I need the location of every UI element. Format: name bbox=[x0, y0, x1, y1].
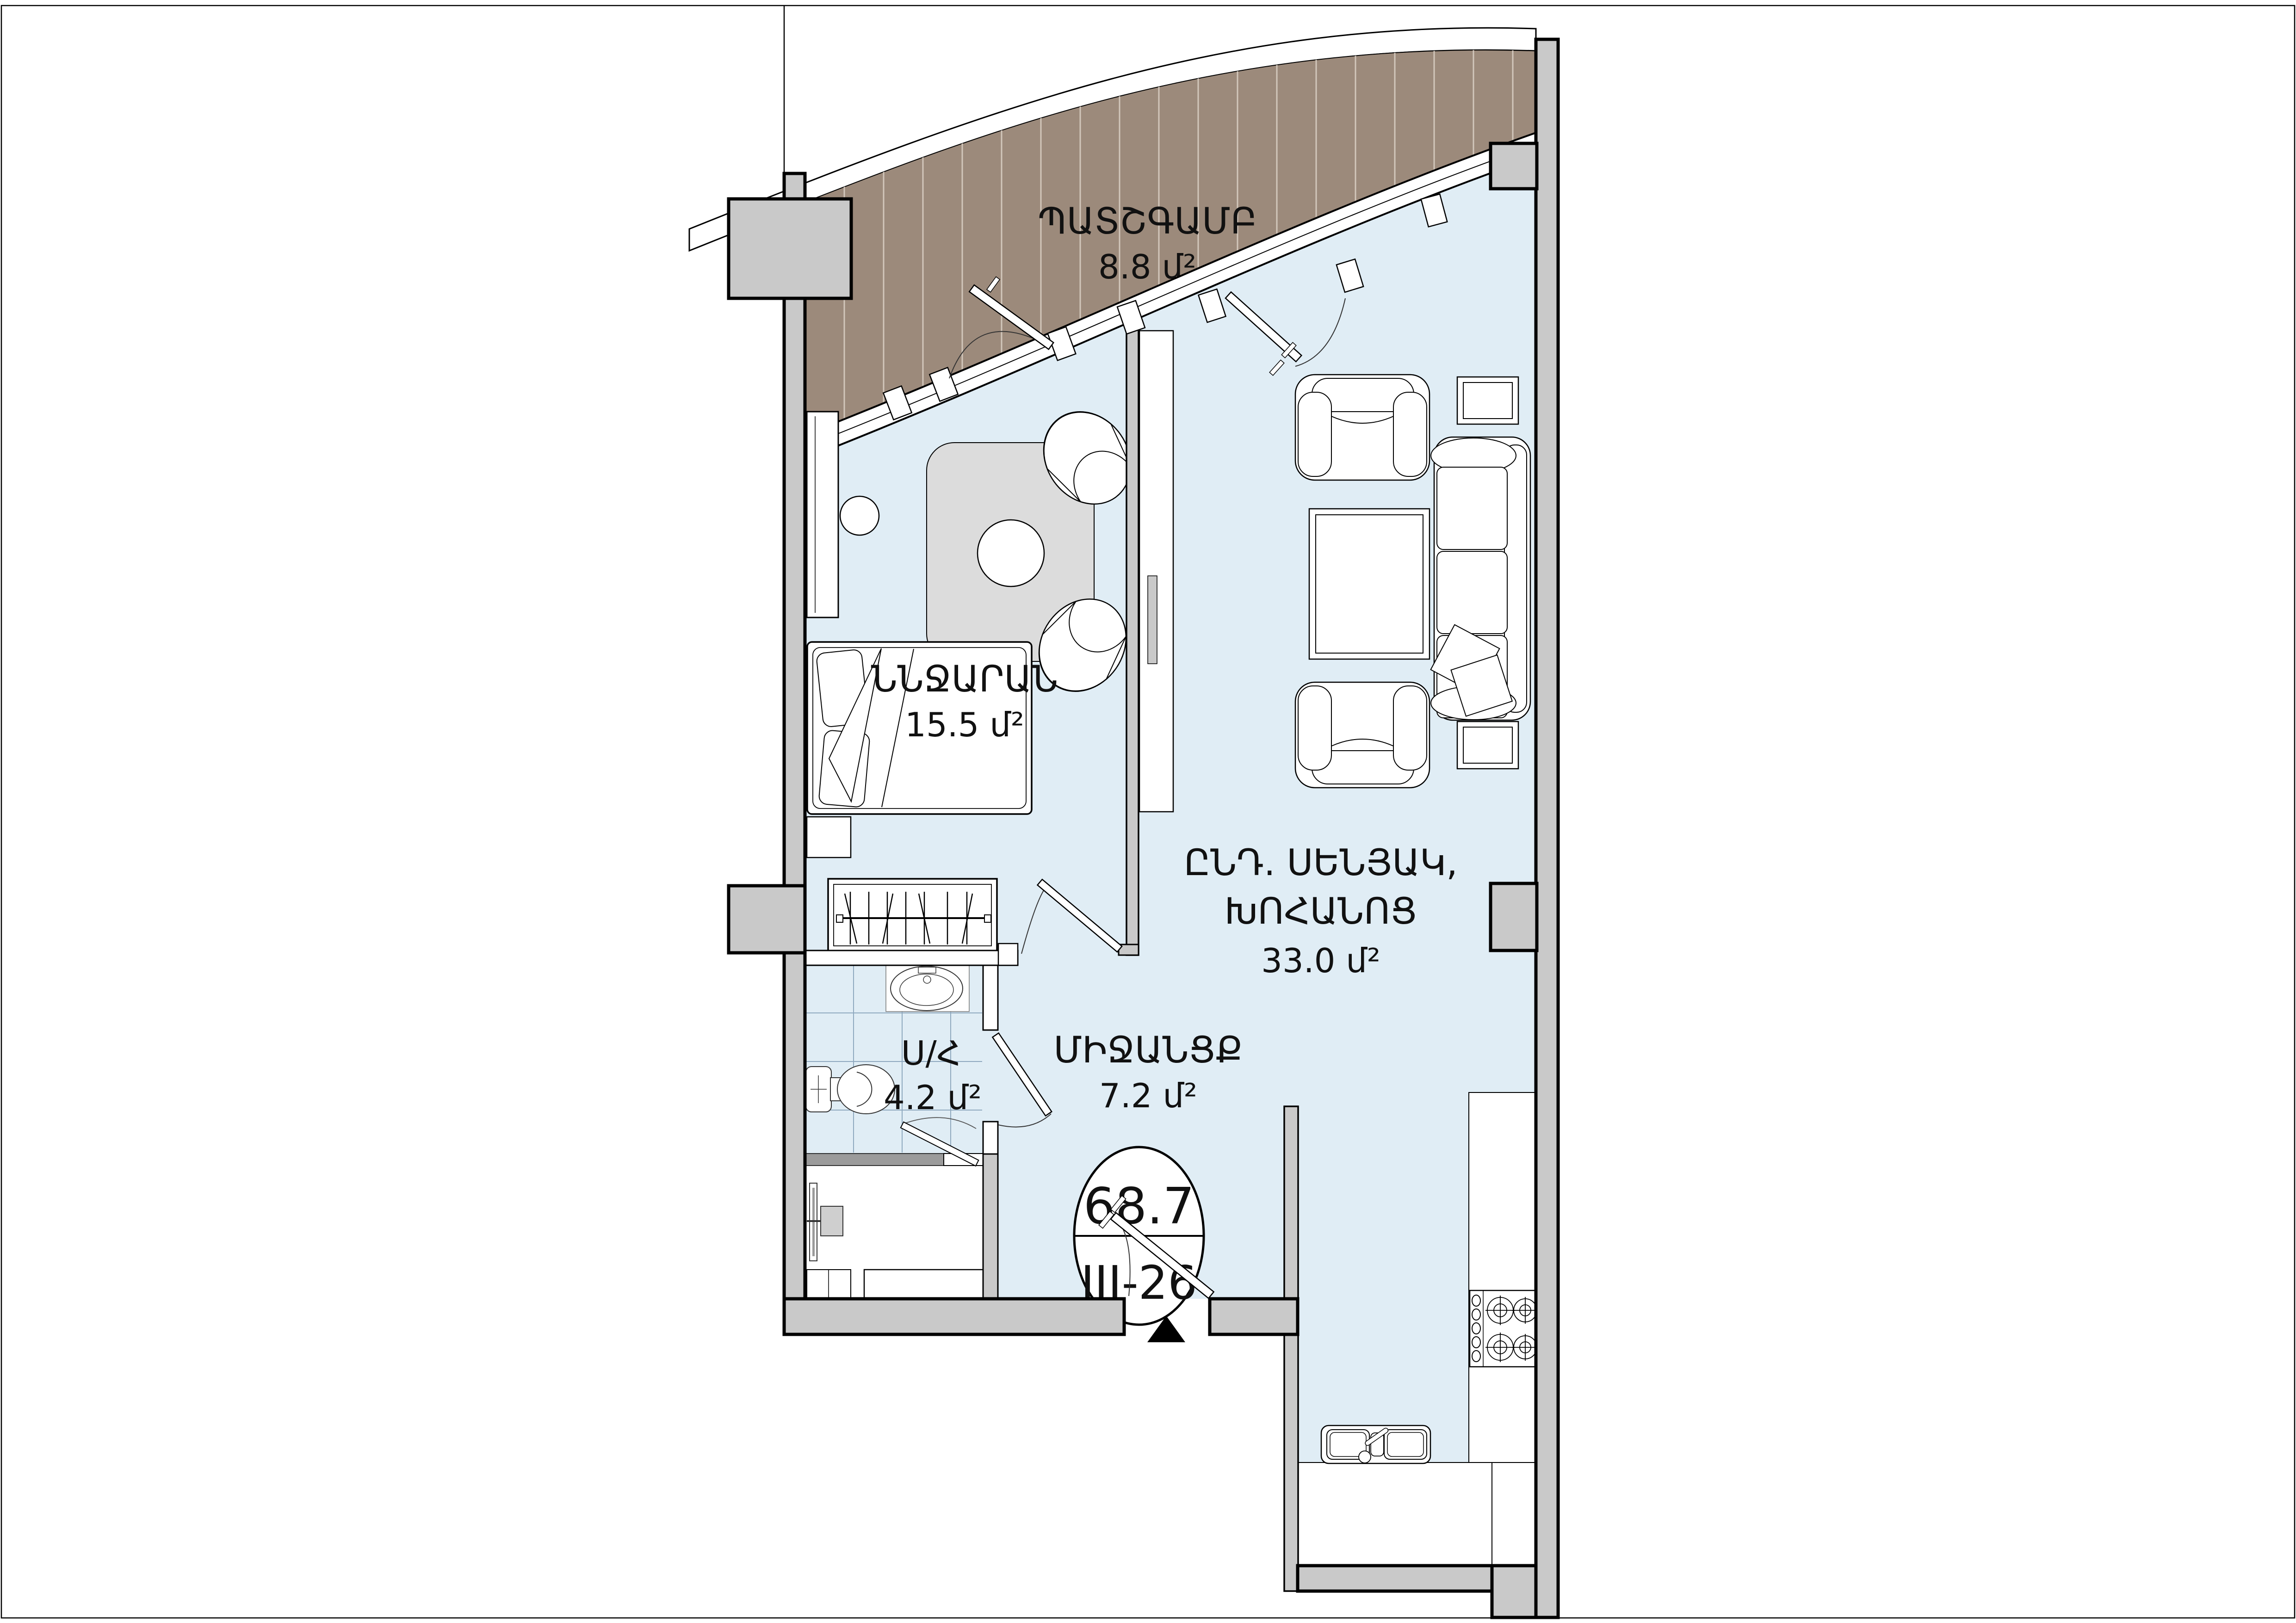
bottom-wall-left bbox=[784, 1299, 1124, 1334]
hallway-area: 7.2 մ² bbox=[1099, 1076, 1197, 1115]
kitchen-counter-bottom bbox=[1298, 1463, 1536, 1565]
nightstand bbox=[807, 817, 851, 858]
sofa bbox=[1431, 437, 1530, 720]
bedroom-door-jamb bbox=[998, 944, 1018, 965]
armchair-north bbox=[1295, 375, 1430, 480]
bedroom-label: ՆՆՋԱՐԱՆ bbox=[871, 659, 1058, 700]
desk bbox=[807, 412, 838, 617]
sliding-panel bbox=[1139, 331, 1173, 812]
sliding-panel-track bbox=[1148, 576, 1157, 664]
stove bbox=[1470, 1290, 1539, 1367]
side-table-north bbox=[1457, 377, 1518, 424]
bathroom-area: 4.2 մ² bbox=[884, 1078, 982, 1117]
wardrobe-front-wall bbox=[805, 950, 1018, 965]
column-mid-left bbox=[729, 886, 805, 953]
balcony-label: ՊԱՏՇԳԱՄԲ bbox=[1038, 201, 1257, 242]
floor-plan-page: ՊԱՏՇԳԱՄԲ 8.8 մ² bbox=[0, 0, 2296, 1623]
bathroom-label: Ս/Հ bbox=[901, 1034, 961, 1073]
living-room-label-1: ԸՆԴ. ՍԵՆՅԱԿ, bbox=[1184, 842, 1458, 884]
left-wall bbox=[784, 173, 805, 1334]
column-top-right bbox=[1491, 143, 1537, 189]
toilet bbox=[806, 1065, 895, 1114]
bathroom-sink bbox=[886, 965, 969, 1012]
shower-room bbox=[805, 1154, 984, 1309]
bottom-wall-kitchen bbox=[1298, 1566, 1492, 1591]
living-room-label-2: ԽՈՀԱՆՈՑ bbox=[1225, 891, 1417, 932]
faucet bbox=[1359, 1451, 1371, 1463]
bottom-wall-entry-right bbox=[1210, 1299, 1298, 1334]
hallway-label: ՄԻՋԱՆՑՔ bbox=[1053, 1030, 1243, 1071]
shower-corridor-wall bbox=[983, 1154, 998, 1311]
shower-half-wall bbox=[805, 1154, 944, 1166]
kitchen-sink bbox=[1321, 1426, 1430, 1463]
armchair-south bbox=[1295, 682, 1430, 788]
bathroom-wall-upper bbox=[983, 965, 998, 1030]
kitchen-counter-right bbox=[1469, 1092, 1536, 1463]
side-table-south bbox=[1457, 722, 1518, 769]
kitchen-partition-wall bbox=[1284, 1106, 1298, 1591]
living-room-area: 33.0 մ² bbox=[1261, 941, 1380, 980]
round-table bbox=[978, 520, 1044, 586]
right-wall bbox=[1536, 39, 1558, 1617]
wardrobe bbox=[828, 879, 997, 951]
column-mid-right bbox=[1491, 883, 1537, 950]
divider-wall bbox=[1126, 324, 1139, 955]
bathroom-wall-stub bbox=[983, 1122, 998, 1154]
coffee-table bbox=[1309, 509, 1430, 659]
badge-total-area: 68.7 bbox=[1083, 1178, 1194, 1235]
stool bbox=[840, 496, 879, 535]
column-top-left bbox=[729, 199, 851, 298]
floor-plan-drawing: ՊԱՏՇԳԱՄԲ 8.8 մ² bbox=[0, 0, 2296, 1623]
bedroom-area: 15.5 մ² bbox=[905, 705, 1024, 744]
